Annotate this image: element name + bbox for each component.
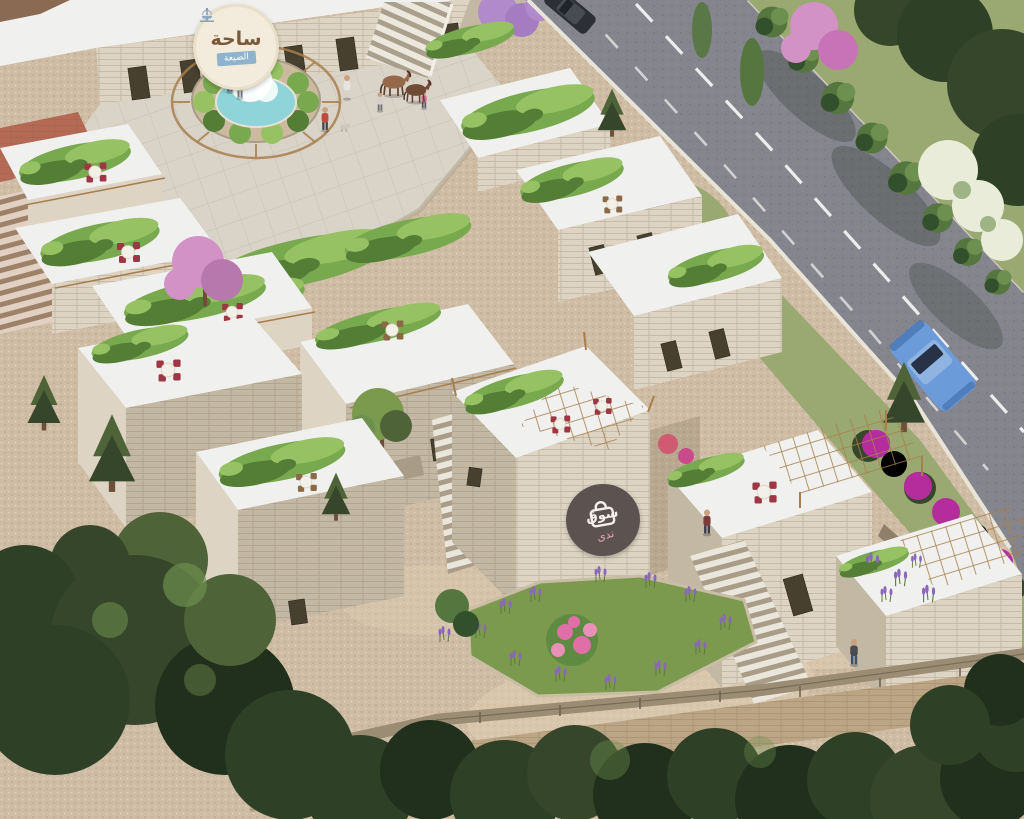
shopping-bag-icon: سوق [582, 496, 623, 532]
architectural-render-scene: ساحة الضيعة سوق ندى [0, 0, 1024, 819]
render-canvas [0, 0, 1024, 819]
plaza-sign: ساحة الضيعة [193, 4, 279, 90]
plaza-sign-title: ساحة [210, 30, 261, 49]
plaza-sign-subtitle: الضيعة [216, 50, 256, 65]
souq-logo-subtitle: ندى [596, 528, 616, 543]
